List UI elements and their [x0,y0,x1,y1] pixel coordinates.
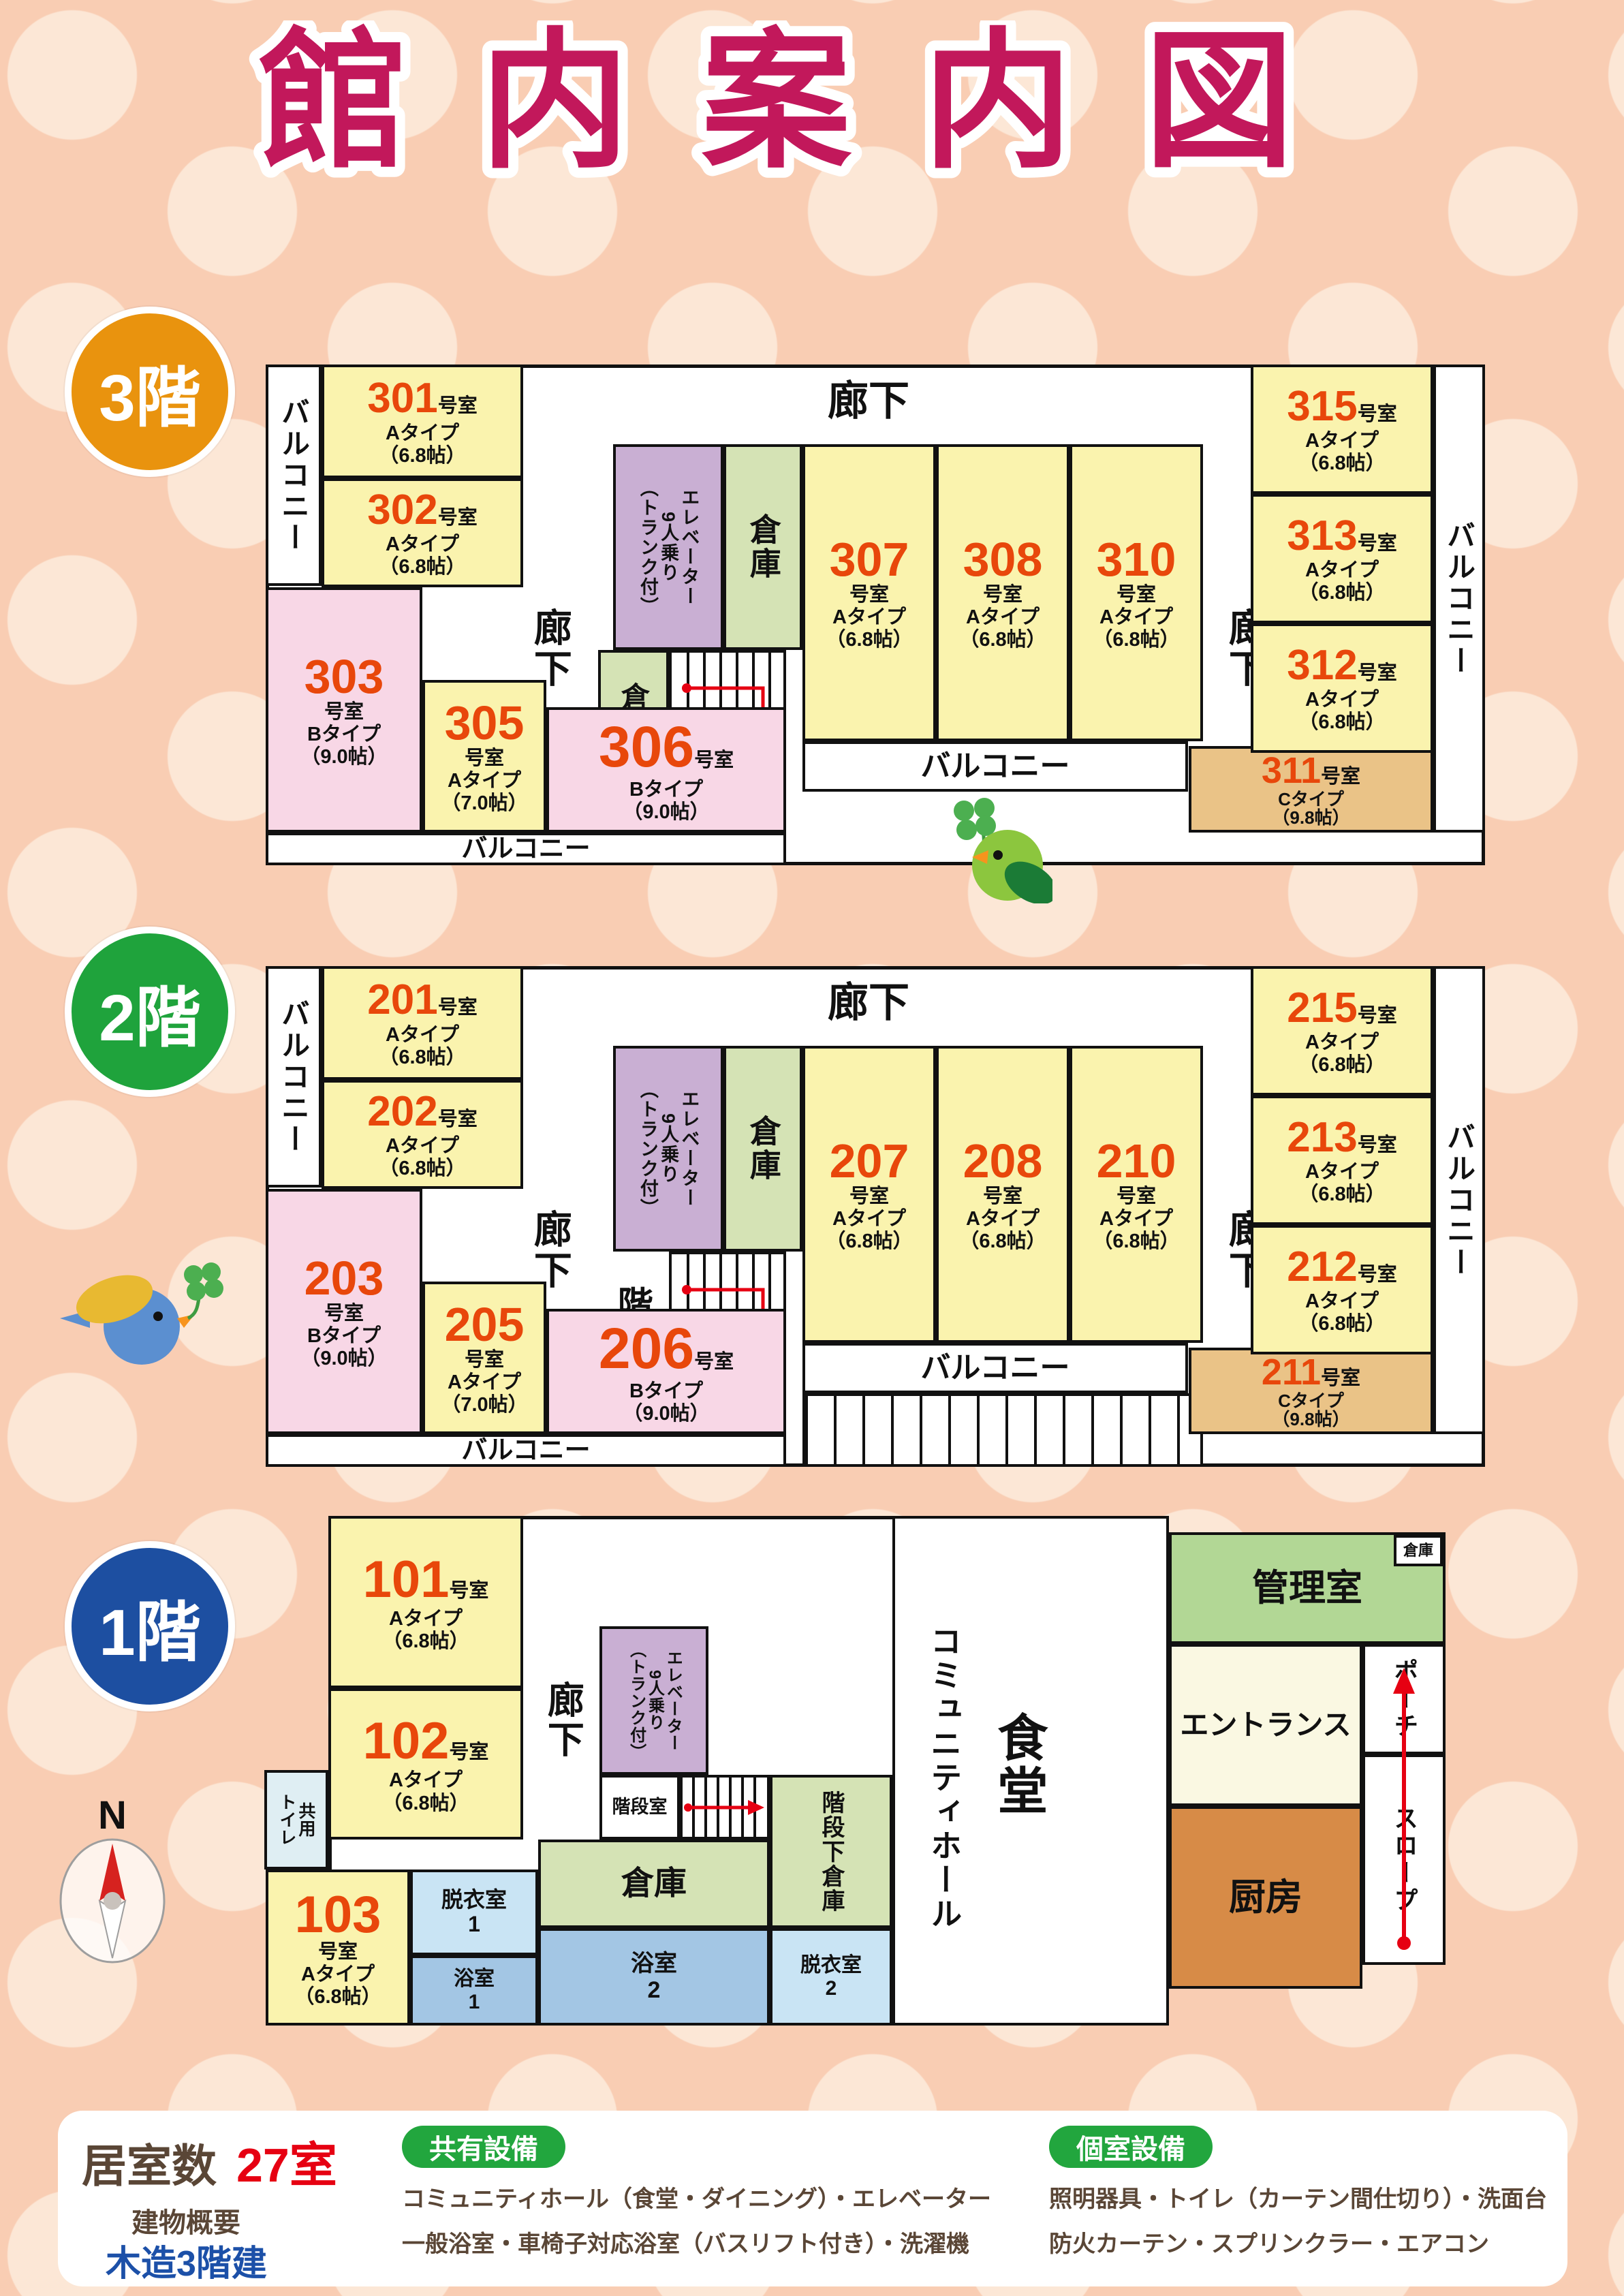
room-size: （9.8帖） [1272,1410,1349,1429]
room-210: 210 号室 Aタイプ （6.8帖） [1069,1046,1203,1343]
badge-floor-3: 3階 [65,307,235,477]
room-suffix: 号室 [465,748,504,769]
room-size: （6.8帖） [379,557,465,577]
room-size: （6.8帖） [382,1793,469,1814]
room-type: Cタイプ [1278,1392,1344,1410]
floor-guide-page: 館内案内図 3階 2階 1階 バルコニー バルコニー バルコニー バルコニー 廊… [0,0,1624,2296]
room-type: Aタイプ [1305,1162,1379,1182]
room-type: Aタイプ [448,771,521,791]
room-number: 305 [445,698,525,748]
floor3-corridor-top: 廊下 [783,373,954,428]
room-213: 213号室 Aタイプ （6.8帖） [1251,1096,1433,1225]
room-suffix: 号室 [1321,766,1360,787]
room-206: 206号室 Bタイプ （9.0帖） [546,1309,786,1434]
floor1-bath-1: 浴室 1 [410,1955,538,2026]
room-number: 213 [1287,1116,1357,1160]
room-size: （6.8帖） [379,446,465,466]
room-number: 211 [1262,1353,1321,1391]
legend-shared-facilities-badge: 共有設備 [402,2126,565,2168]
room-311: 311号室 Cタイプ （9.8帖） [1189,746,1433,833]
room-type: Aタイプ [386,1025,459,1045]
room-202: 202号室 Aタイプ （6.8帖） [322,1080,523,1189]
room-suffix: 号室 [849,585,889,605]
room-type: Aタイプ [1099,1209,1173,1229]
room-type: Aタイプ [301,1964,375,1985]
room-size: （6.8帖） [826,630,912,650]
floor1-storage: 倉庫 [538,1840,770,1928]
room-number: 202 [367,1090,437,1134]
legend-building-value: 木造3階建 [106,2235,267,2286]
room-suffix: 号室 [1358,533,1397,554]
badge-floor-1: 1階 [65,1541,235,1711]
floor3-balcony-bottom: バルコニー [266,833,786,865]
floor2-elevator: エレベーター 9人乗り （トランク付） [613,1046,723,1252]
legend-room-count-label: 居室数 [82,2130,217,2195]
room-number: 306 [599,717,694,777]
slope-arrow-icon [1381,1661,1426,1958]
room-suffix: 号室 [324,702,364,722]
room-type: Aタイプ [389,1609,463,1629]
room-number: 312 [1287,644,1357,687]
room-type: Aタイプ [1305,1291,1379,1312]
room-size: （6.8帖） [294,1987,381,2007]
room-suffix: 号室 [438,396,478,416]
room-208: 208 号室 Aタイプ （6.8帖） [936,1046,1069,1343]
room-type: Aタイプ [966,1209,1040,1229]
room-207: 207 号室 Aタイプ （6.8帖） [802,1046,936,1343]
room-size: （6.8帖） [1298,583,1385,603]
room-type: Aタイプ [832,1209,906,1229]
room-number: 302 [367,488,437,532]
room-212: 212号室 Aタイプ （6.8帖） [1251,1225,1433,1354]
room-suffix: 号室 [1358,663,1397,683]
room-type: Aタイプ [389,1770,463,1790]
room-number: 212 [1287,1245,1357,1289]
room-size: （9.0帖） [300,1348,387,1369]
room-suffix: 号室 [1358,1006,1397,1026]
floor3-balcony-right: バルコニー [1433,364,1485,833]
room-312: 312号室 Aタイプ （6.8帖） [1251,623,1433,753]
room-type: Aタイプ [448,1372,521,1393]
room-size: （6.8帖） [959,1231,1046,1252]
room-number: 315 [1287,385,1357,429]
floor2-balcony-bottom: バルコニー [266,1434,786,1467]
room-size: （9.0帖） [623,1403,709,1424]
room-number: 205 [445,1300,525,1350]
room-306: 306号室 Bタイプ （9.0帖） [546,707,786,833]
room-suffix: 号室 [1358,404,1397,424]
room-301: 301号室 Aタイプ （6.8帖） [322,364,523,478]
room-303: 303 号室 Bタイプ （9.0帖） [266,587,422,833]
room-101: 101号室 Aタイプ （6.8帖） [328,1516,523,1688]
room-type: Aタイプ [386,423,459,444]
floor3-balcony-left: バルコニー [266,364,322,586]
room-size: （6.8帖） [1298,712,1385,732]
compass-icon: N [54,1792,170,1969]
room-size: （6.8帖） [1298,453,1385,474]
floor1-stairs [680,1775,770,1840]
room-suffix: 号室 [1358,1265,1397,1285]
badge-floor-2: 2階 [65,927,235,1097]
blue-bird-icon [48,1250,232,1376]
room-suffix: 号室 [983,585,1022,605]
room-suffix: 号室 [449,1742,488,1763]
room-size: （6.8帖） [1093,630,1179,650]
room-number: 308 [963,535,1043,585]
room-suffix: 号室 [1116,1186,1156,1207]
compass-north-label: N [98,1793,127,1837]
room-205: 205 号室 Aタイプ （7.0帖） [422,1282,546,1434]
room-number: 206 [599,1319,694,1378]
page-title-text: 館内案内図 [258,20,1365,185]
floor3-balcony-center: バルコニー [802,741,1188,792]
room-type: Cタイプ [1278,790,1344,809]
floor1-bath-2: 浴室 2 [538,1928,770,2026]
room-size: （6.8帖） [1298,1314,1385,1334]
floor3-storage-upper: 倉庫 [723,444,802,650]
floor1-shared-toilet: 共用 トイレ [264,1770,328,1870]
floor1-management-storage: 倉庫 [1394,1535,1443,1566]
clover-icon [954,798,996,840]
legend-private-facilities-line1: 照明器具・トイレ（カーテン間仕切り）・洗面台 [1049,2180,1547,2214]
room-suffix: 号室 [324,1303,364,1324]
floor1-dining-label: 食堂 [984,1683,1052,1846]
floor1-elevator: エレベーター 9人乗り （トランク付） [599,1626,708,1775]
floor1-corridor: 廊下 [538,1656,586,1785]
stairs-route-arrow [684,1800,764,1815]
floor2-storage-upper: 倉庫 [723,1046,802,1252]
room-type: Aタイプ [386,534,459,555]
page-title: 館内案内図 [95,20,1529,191]
room-type: Aタイプ [1305,431,1379,451]
floor1-kitchen: 厨房 [1169,1806,1362,1989]
room-suffix: 号室 [1358,1135,1397,1155]
room-type: Bタイプ [629,1381,703,1401]
room-suffix: 号室 [1321,1368,1360,1389]
stairs-icon [683,1778,767,1837]
room-suffix: 号室 [449,1581,488,1601]
legend-private-facilities-badge: 個室設備 [1049,2126,1213,2168]
room-type: Aタイプ [832,607,906,627]
room-number: 103 [295,1888,381,1942]
room-number: 311 [1262,751,1321,790]
room-313: 313号室 Aタイプ （6.8帖） [1251,494,1433,623]
room-302: 302号室 Aタイプ （6.8帖） [322,478,523,587]
floor2-roof-hatch [802,1393,1203,1467]
room-number: 201 [367,978,437,1022]
room-size: （6.8帖） [1298,1055,1385,1075]
legend-private-facilities-line2: 防火カーテン・スプリンクラー・エアコン [1049,2225,1489,2259]
room-size: （6.8帖） [959,630,1046,650]
floor1-stair-room-label: 階段室 [599,1775,680,1840]
room-type: Aタイプ [386,1136,459,1156]
room-number: 307 [830,535,909,585]
floor2-balcony-left: バルコニー [266,966,322,1188]
room-size: （6.8帖） [382,1631,469,1651]
room-size: （9.0帖） [300,747,387,767]
room-number: 203 [304,1254,384,1303]
room-suffix: 号室 [465,1350,504,1370]
room-308: 308 号室 Aタイプ （6.8帖） [936,444,1069,741]
legend-panel: 居室数 27室 建物概要 木造3階建 共有設備 コミュニティホール（食堂・ダイニ… [58,2111,1567,2286]
room-211: 211号室 Cタイプ （9.8帖） [1189,1348,1433,1434]
room-number: 210 [1097,1136,1176,1186]
room-type: Bタイプ [307,724,381,745]
room-size: （6.8帖） [379,1158,465,1179]
room-suffix: 号室 [849,1186,889,1207]
floor1-dressing-room-2: 脱衣室 2 [770,1928,892,2026]
room-suffix: 号室 [1116,585,1156,605]
floor2-balcony-center: バルコニー [802,1343,1188,1393]
room-number: 208 [963,1136,1043,1186]
room-type: Aタイプ [1305,1032,1379,1053]
floor2-corridor-top: 廊下 [783,975,954,1029]
legend-shared-facilities-line2: 一般浴室・車椅子対応浴室（バスリフト付き）・洗濯機 [402,2225,969,2259]
room-suffix: 号室 [318,1942,358,1962]
room-size: （9.0帖） [623,802,709,822]
floor3-elevator: エレベーター 9人乗り （トランク付） [613,444,723,650]
room-number: 313 [1287,514,1357,558]
legend-shared-facilities-line1: コミュニティホール（食堂・ダイニング）・エレベーター [402,2180,991,2214]
floor2-balcony-right: バルコニー [1433,966,1485,1434]
room-type: Aタイプ [966,607,1040,627]
room-size: （7.0帖） [441,793,527,813]
room-size: （7.0帖） [441,1395,527,1415]
room-suffix: 号室 [694,1352,734,1372]
room-310: 310 号室 Aタイプ （6.8帖） [1069,444,1203,741]
floor1-entrance: エントランス [1169,1644,1362,1806]
room-number: 102 [363,1714,450,1768]
room-suffix: 号室 [983,1186,1022,1207]
room-type: Aタイプ [1305,560,1379,580]
legend-room-count-value: 27室 [236,2127,337,2196]
room-103: 103 号室 Aタイプ （6.8帖） [266,1870,410,2026]
room-suffix: 号室 [438,1109,478,1130]
room-size: （6.8帖） [1298,1184,1385,1205]
room-number: 310 [1097,535,1176,585]
room-type: Bタイプ [629,779,703,800]
floor1-under-stair-storage: 階段下倉庫 [770,1775,892,1928]
room-number: 207 [830,1136,909,1186]
room-size: （6.8帖） [826,1231,912,1252]
room-number: 101 [363,1553,450,1607]
room-size: （6.8帖） [1093,1231,1179,1252]
room-201: 201号室 Aタイプ （6.8帖） [322,966,523,1080]
clover-icon [184,1262,223,1301]
room-suffix: 号室 [438,997,478,1018]
room-203: 203 号室 Bタイプ （9.0帖） [266,1189,422,1434]
room-suffix: 号室 [694,750,734,771]
room-type: Aタイプ [1305,689,1379,710]
room-305: 305 号室 Aタイプ （7.0帖） [422,680,546,833]
room-number: 301 [367,377,437,420]
floor1-community-hall-label: コミュニティホール [918,1543,970,2013]
room-315: 315号室 Aタイプ （6.8帖） [1251,364,1433,494]
room-size: （9.8帖） [1272,809,1349,827]
room-type: Aタイプ [1099,607,1173,627]
room-suffix: 号室 [438,508,478,528]
green-bird-icon [923,789,1052,903]
room-307: 307 号室 Aタイプ （6.8帖） [802,444,936,741]
room-215: 215号室 Aタイプ （6.8帖） [1251,966,1433,1096]
room-size: （6.8帖） [379,1047,465,1068]
floor1-dressing-room-1: 脱衣室 1 [410,1870,538,1955]
room-102: 102号室 Aタイプ （6.8帖） [328,1688,523,1840]
room-type: Bタイプ [307,1326,381,1346]
room-number: 303 [304,652,384,702]
room-number: 215 [1287,987,1357,1030]
